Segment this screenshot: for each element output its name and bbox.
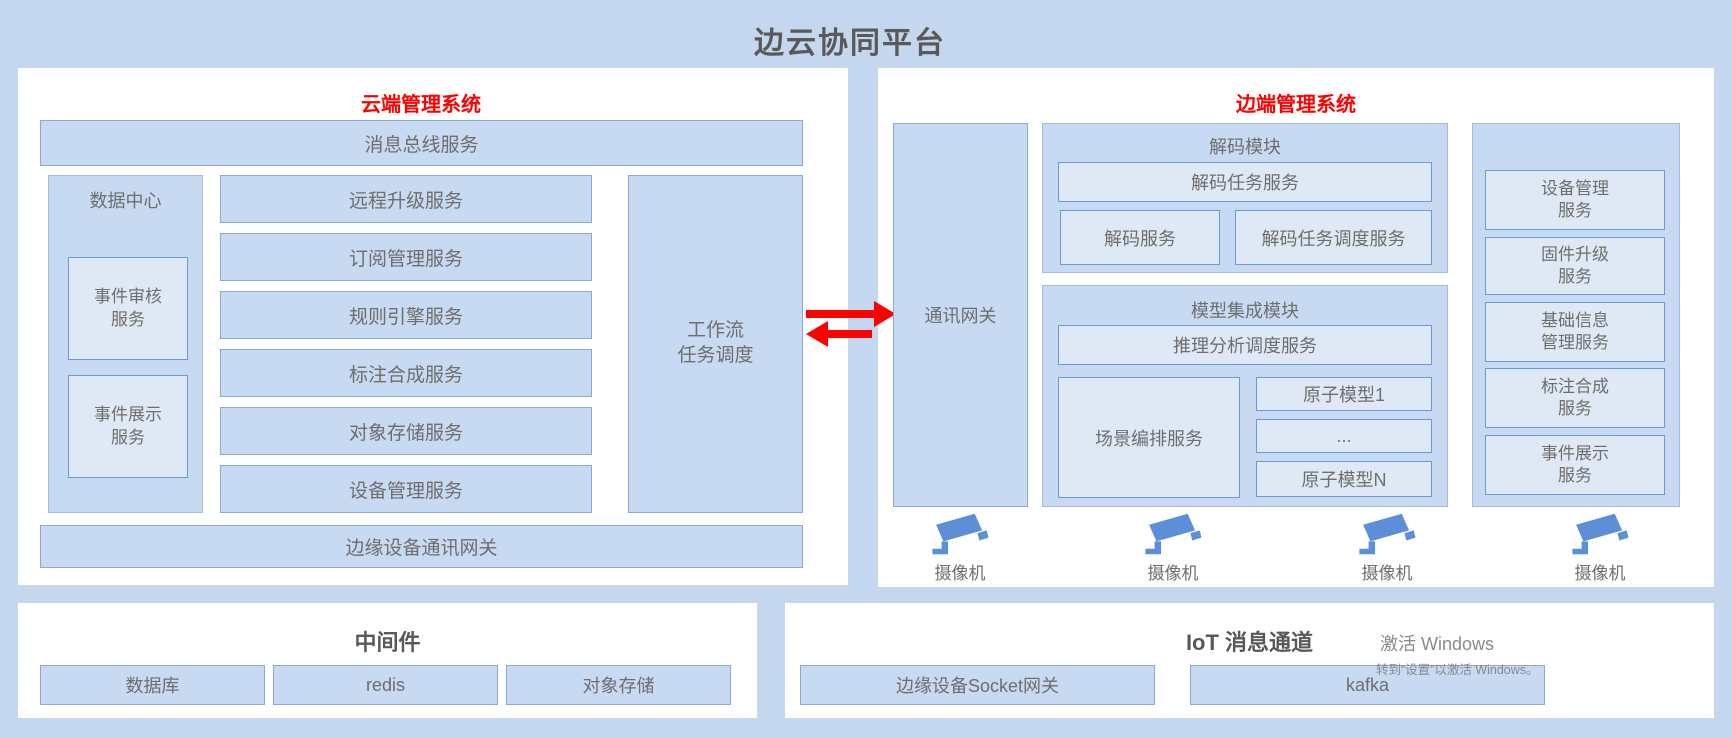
event-audit-service-box: 事件审核 服务 (68, 257, 188, 360)
database-box: 数据库 (40, 665, 265, 705)
subscription-mgmt-service-box: 订阅管理服务 (220, 233, 592, 281)
camera-1: 摄像机 (900, 511, 1020, 584)
camera-3: 摄像机 (1327, 511, 1447, 584)
arrow-left-head-icon (806, 321, 828, 347)
decode-task-scheduler-service-box: 解码任务调度服务 (1235, 210, 1432, 265)
edge-panel-title: 边端管理系统 (996, 88, 1596, 117)
cloud-panel-title: 云端管理系统 (121, 88, 721, 117)
decode-module-title: 解码模块 (1042, 133, 1448, 159)
message-bus-service-box: 消息总线服务 (40, 120, 803, 166)
windows-activation-watermark-line2: 转到“设置”以激活 Windows。 (1376, 659, 1539, 678)
middleware-title: 中间件 (18, 625, 757, 657)
redis-box: redis (273, 665, 498, 705)
atomic-model-1-box: 原子模型1 (1256, 377, 1432, 411)
arrow-right-icon (806, 310, 874, 318)
camera-label: 摄像机 (1575, 559, 1626, 584)
annotation-compose-service-box: 标注合成服务 (220, 349, 592, 397)
event-display-service-box: 事件展示 服务 (68, 375, 188, 478)
camera-4: 摄像机 (1540, 511, 1660, 584)
device-mgmt-service-box: 设备管理服务 (220, 465, 592, 513)
object-storage-service-box: 对象存储服务 (220, 407, 592, 455)
camera-icon (1569, 511, 1631, 557)
firmware-upgrade-service-box: 固件升级 服务 (1485, 237, 1665, 295)
camera-icon (929, 511, 991, 557)
windows-activation-watermark-line1: 激活 Windows (1380, 630, 1494, 656)
event-display-service-edge-box: 事件展示 服务 (1485, 435, 1665, 495)
model-module-title: 模型集成模块 (1042, 297, 1448, 323)
camera-icon (1356, 511, 1418, 557)
workflow-task-scheduler-box: 工作流 任务调度 (628, 175, 803, 513)
iot-channel-title: IoT 消息通道 (785, 625, 1714, 657)
object-storage-box: 对象存储 (506, 665, 731, 705)
decode-service-box: 解码服务 (1060, 210, 1220, 265)
camera-label: 摄像机 (935, 559, 986, 584)
comm-gateway-box: 通讯网关 (893, 123, 1028, 507)
inference-scheduler-service-box: 推理分析调度服务 (1058, 325, 1432, 365)
basic-info-mgmt-service-box: 基础信息 管理服务 (1485, 302, 1665, 362)
atomic-model-n-box: 原子模型N (1256, 461, 1432, 497)
camera-icon (1142, 511, 1204, 557)
data-center-title: 数据中心 (48, 187, 203, 213)
decode-task-service-box: 解码任务服务 (1058, 162, 1432, 202)
slide-background: 边云协同平台 云端管理系统 消息总线服务 数据中心 事件审核 服务 事件展示 服… (0, 0, 1732, 738)
camera-label: 摄像机 (1362, 559, 1413, 584)
arrow-left-icon (828, 330, 872, 338)
device-mgmt-service-edge-box: 设备管理 服务 (1485, 170, 1665, 230)
annotation-compose-service-edge-box: 标注合成 服务 (1485, 368, 1665, 428)
atomic-model-ellipsis-box: ... (1256, 419, 1432, 453)
edge-device-gateway-bar: 边缘设备通讯网关 (40, 525, 803, 568)
edge-socket-gateway-box: 边缘设备Socket网关 (800, 665, 1155, 705)
remote-upgrade-service-box: 远程升级服务 (220, 175, 592, 223)
camera-2: 摄像机 (1113, 511, 1233, 584)
page-title: 边云协同平台 (0, 18, 1700, 62)
rule-engine-service-box: 规则引擎服务 (220, 291, 592, 339)
camera-label: 摄像机 (1148, 559, 1199, 584)
scene-orchestration-service-box: 场景编排服务 (1058, 377, 1240, 498)
